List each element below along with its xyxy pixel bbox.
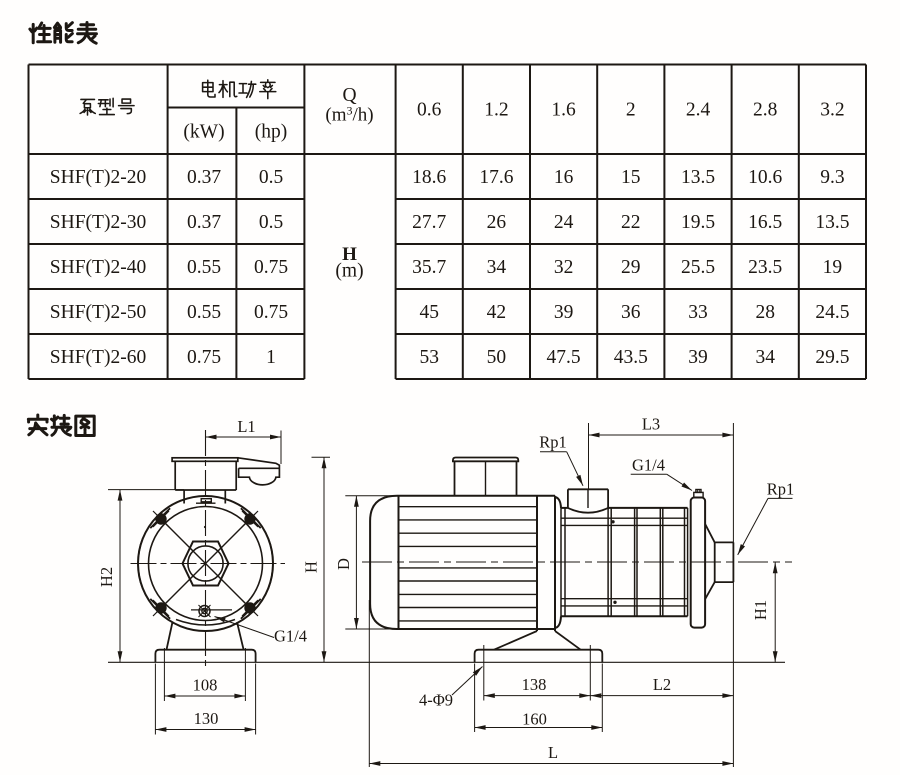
svg-text:53: 53 <box>419 347 439 368</box>
svg-text:SHF(T)2-30: SHF(T)2-30 <box>50 212 146 233</box>
svg-text:L: L <box>548 743 558 762</box>
svg-text:13.5: 13.5 <box>681 167 715 188</box>
svg-text:4-Φ9: 4-Φ9 <box>419 691 453 710</box>
svg-text:(m): (m) <box>335 261 363 282</box>
svg-text:34: 34 <box>487 257 507 278</box>
svg-text:9.3: 9.3 <box>820 167 844 188</box>
svg-text:L2: L2 <box>653 675 671 694</box>
svg-text:47.5: 47.5 <box>547 347 581 368</box>
svg-text:138: 138 <box>522 675 547 694</box>
svg-text:G1/4: G1/4 <box>274 627 307 646</box>
svg-text:10.6: 10.6 <box>748 167 782 188</box>
svg-text:28: 28 <box>755 302 775 323</box>
svg-text:H1: H1 <box>751 600 770 620</box>
svg-text:19.5: 19.5 <box>681 212 715 233</box>
svg-text:0.5: 0.5 <box>259 212 283 233</box>
svg-text:16.5: 16.5 <box>748 212 782 233</box>
svg-text:16: 16 <box>554 167 574 188</box>
svg-text:29: 29 <box>621 257 641 278</box>
svg-text:Rp1: Rp1 <box>767 480 795 499</box>
svg-text:0.37: 0.37 <box>187 212 221 233</box>
svg-text:2.8: 2.8 <box>753 100 777 121</box>
svg-text:0.6: 0.6 <box>417 100 442 121</box>
svg-text:SHF(T)2-60: SHF(T)2-60 <box>50 347 146 368</box>
svg-text:0.5: 0.5 <box>259 167 283 188</box>
svg-text:13.5: 13.5 <box>815 212 849 233</box>
svg-text:1: 1 <box>266 347 276 368</box>
svg-text:2: 2 <box>626 100 636 121</box>
svg-text:160: 160 <box>522 710 547 729</box>
svg-text:34: 34 <box>755 347 775 368</box>
svg-text:39: 39 <box>688 347 708 368</box>
svg-text:108: 108 <box>193 676 218 695</box>
svg-text:L1: L1 <box>237 417 255 436</box>
svg-text:Rp1: Rp1 <box>539 433 567 452</box>
svg-text:19: 19 <box>823 257 843 278</box>
svg-text:1.2: 1.2 <box>484 100 508 121</box>
svg-text:39: 39 <box>554 302 574 323</box>
svg-text:3.2: 3.2 <box>820 100 844 121</box>
svg-text:24: 24 <box>554 212 574 233</box>
svg-text:15: 15 <box>621 167 641 188</box>
svg-text:24.5: 24.5 <box>815 302 849 323</box>
svg-text:0.37: 0.37 <box>187 167 221 188</box>
svg-text:32: 32 <box>554 257 574 278</box>
svg-text:(kW): (kW) <box>183 122 224 143</box>
svg-text:42: 42 <box>487 302 507 323</box>
svg-text:SHF(T)2-20: SHF(T)2-20 <box>50 167 146 188</box>
svg-text:L3: L3 <box>642 415 660 434</box>
svg-text:0.75: 0.75 <box>254 302 288 323</box>
svg-text:(hp): (hp) <box>255 122 288 143</box>
svg-text:33: 33 <box>688 302 708 323</box>
svg-text:43.5: 43.5 <box>614 347 648 368</box>
svg-text:D: D <box>334 558 353 570</box>
svg-text:22: 22 <box>621 212 641 233</box>
svg-text:27.7: 27.7 <box>412 212 446 233</box>
svg-text:23.5: 23.5 <box>748 257 782 278</box>
svg-text:(m3/h): (m3/h) <box>325 104 373 126</box>
svg-text:45: 45 <box>419 302 439 323</box>
svg-text:26: 26 <box>487 212 507 233</box>
svg-text:35.7: 35.7 <box>412 257 446 278</box>
svg-text:29.5: 29.5 <box>815 347 849 368</box>
svg-text:25.5: 25.5 <box>681 257 715 278</box>
svg-text:50: 50 <box>487 347 507 368</box>
svg-text:18.6: 18.6 <box>412 167 446 188</box>
svg-text:0.55: 0.55 <box>187 257 221 278</box>
svg-text:130: 130 <box>194 709 219 728</box>
svg-text:G1/4: G1/4 <box>632 456 665 475</box>
svg-text:0.75: 0.75 <box>254 257 288 278</box>
svg-text:1.6: 1.6 <box>551 100 576 121</box>
svg-text:SHF(T)2-40: SHF(T)2-40 <box>50 257 146 278</box>
svg-text:2.4: 2.4 <box>686 100 711 121</box>
svg-text:0.75: 0.75 <box>187 347 221 368</box>
svg-text:H: H <box>302 561 321 573</box>
svg-text:H2: H2 <box>97 567 116 587</box>
svg-text:0.55: 0.55 <box>187 302 221 323</box>
svg-text:SHF(T)2-50: SHF(T)2-50 <box>50 302 146 323</box>
svg-text:36: 36 <box>621 302 641 323</box>
svg-text:17.6: 17.6 <box>479 167 513 188</box>
